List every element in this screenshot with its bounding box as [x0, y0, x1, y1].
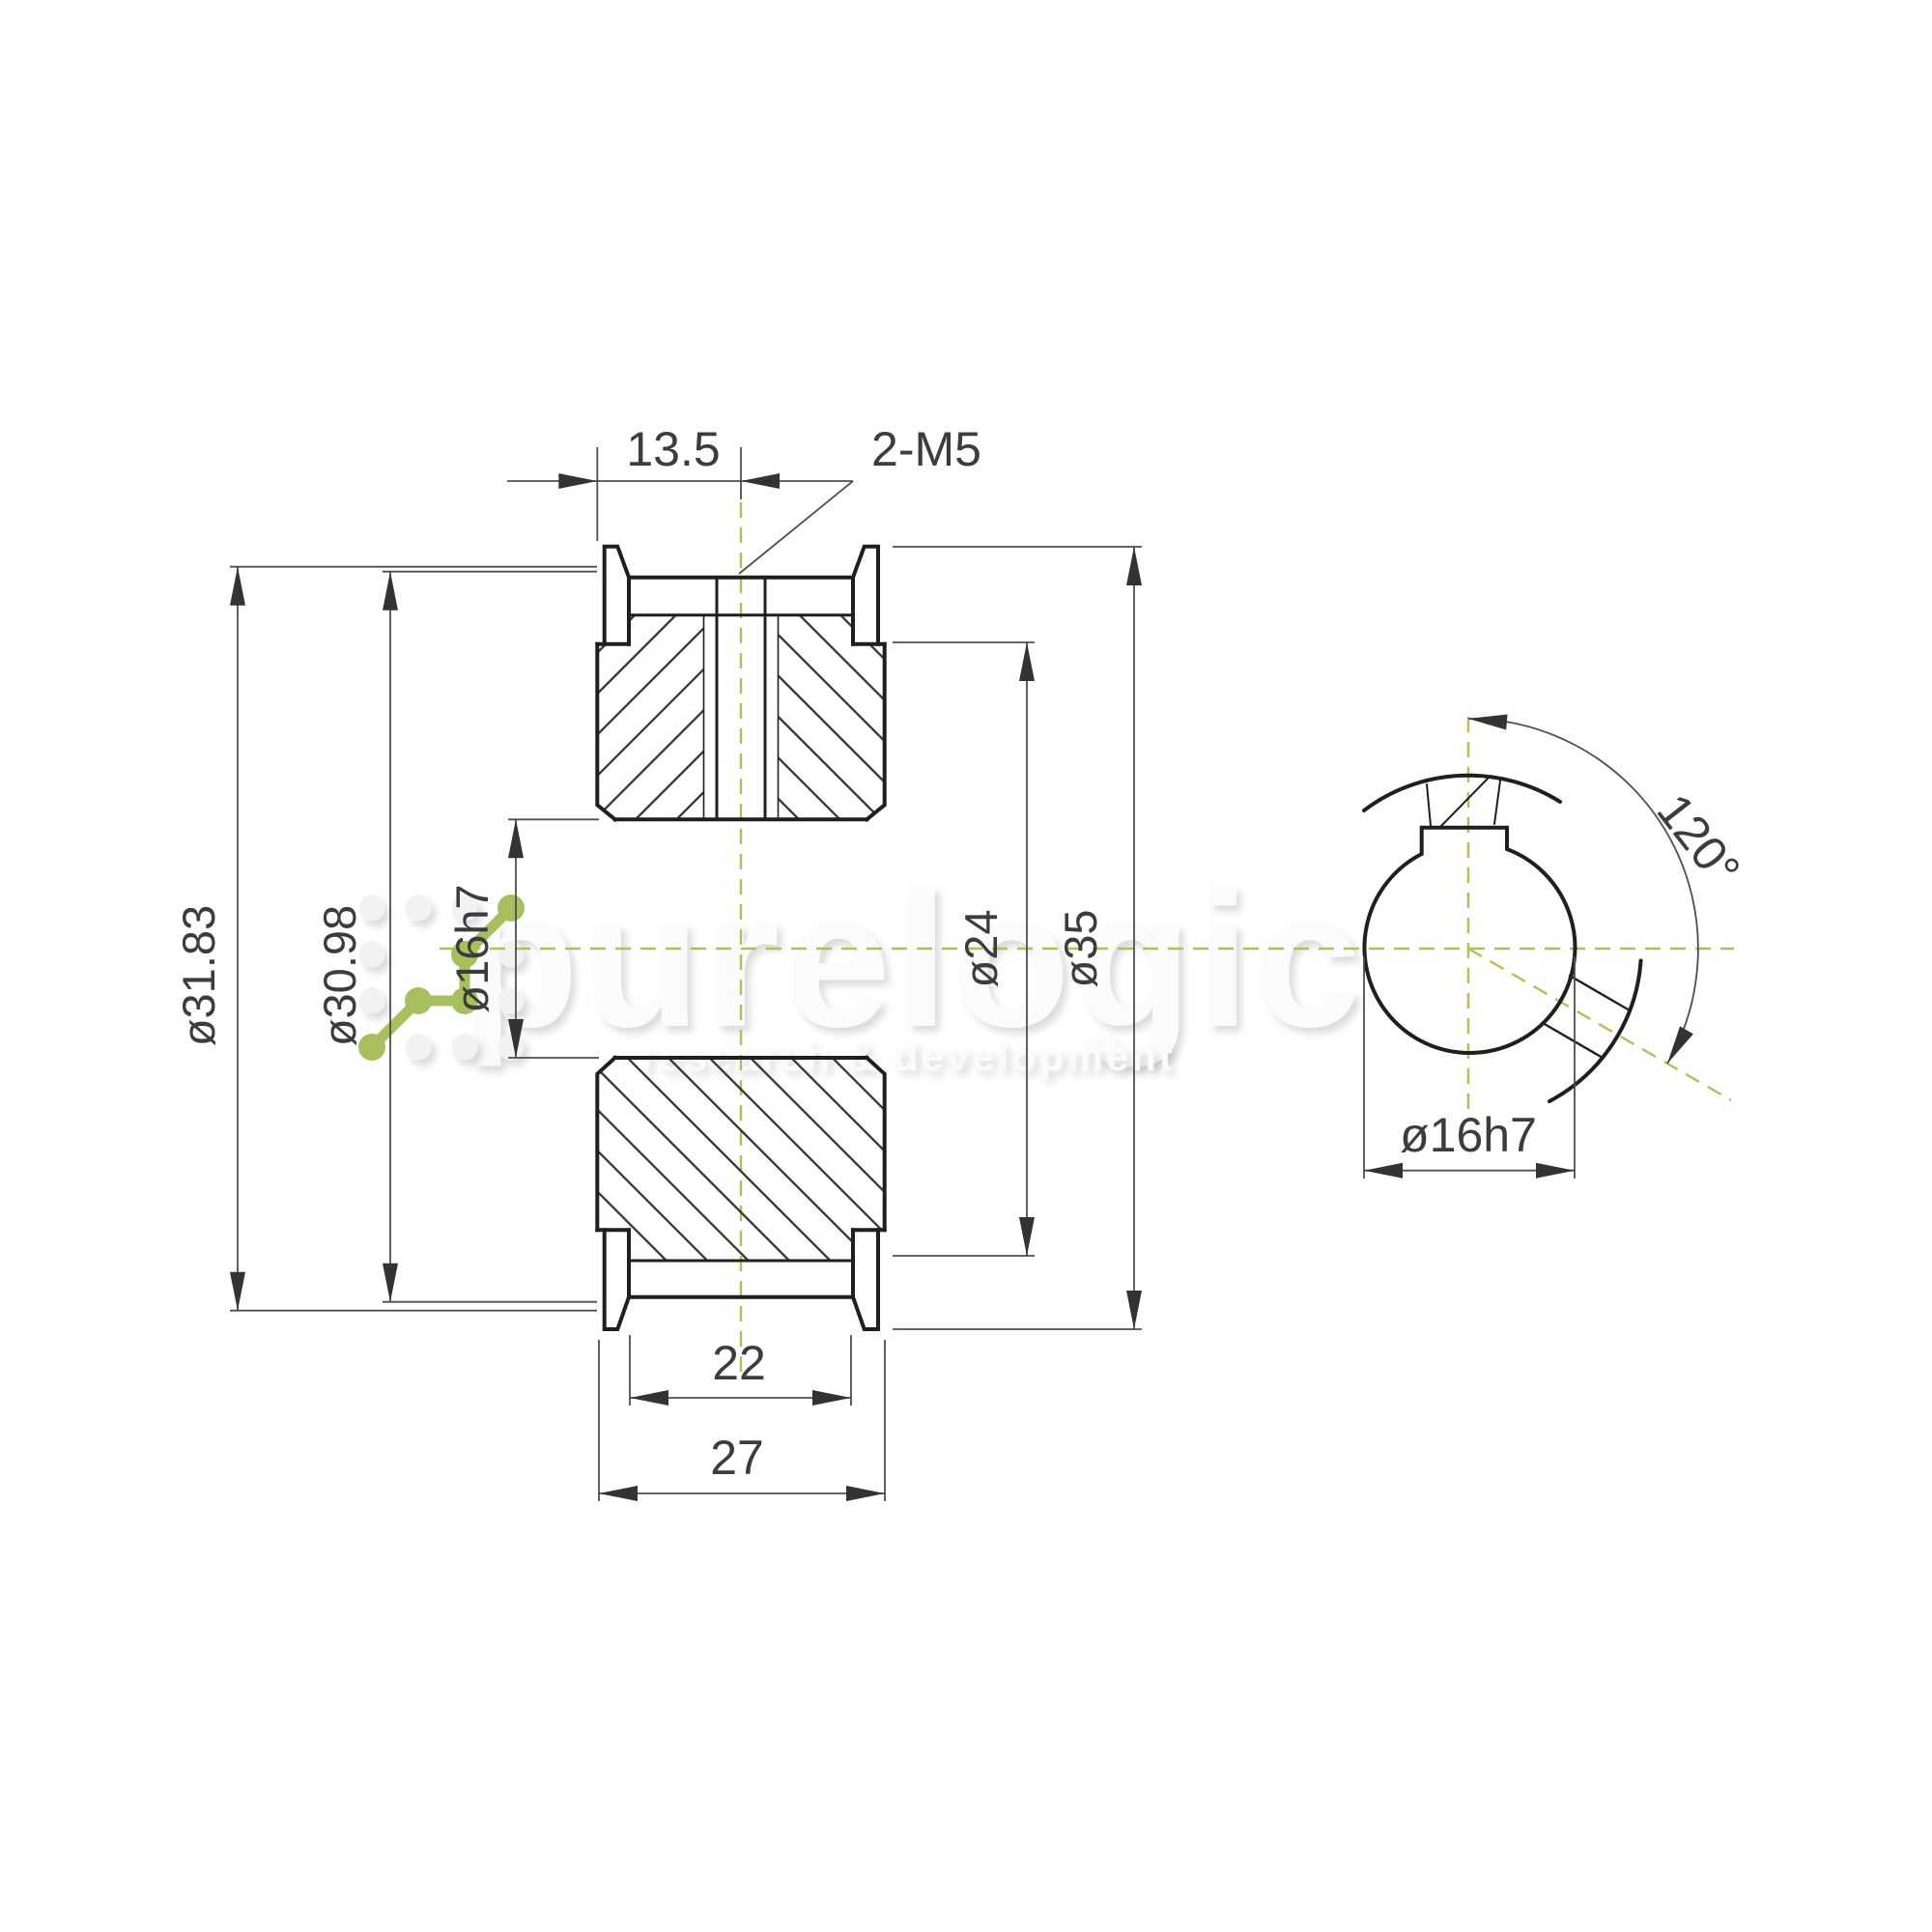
label-hole-offset: 13.5 — [626, 422, 720, 476]
pulley-drawing-svg: purelogic research & development — [0, 0, 1932, 1932]
label-setscrew: 2-M5 — [871, 422, 981, 476]
label-pitch-diameter: ø31.83 — [173, 905, 224, 1046]
side-view-outline — [1364, 776, 1641, 1101]
dim-angle-arc — [1468, 719, 1698, 1064]
label-overall-width: 27 — [710, 1431, 764, 1485]
hatch-bottom — [597, 1058, 884, 1261]
label-hub-diameter: ø24 — [955, 910, 1007, 988]
outer-arc-bottom — [1549, 961, 1641, 1102]
technical-drawing-page: purelogic research & development — [0, 0, 1932, 1932]
label-setscrew-angle: 120° — [1646, 784, 1750, 896]
setscrew-hole-side — [1427, 779, 1500, 826]
label-bore-side: ø16h7 — [1400, 1108, 1537, 1162]
label-outside-diameter: ø30.98 — [314, 905, 365, 1046]
dimension-labels: ø31.83 ø30.98 ø16h7 ø24 ø35 13.5 2-M5 22… — [173, 422, 1750, 1485]
side-keyway-axis-centerline — [1468, 949, 1731, 1100]
watermark: purelogic research & development — [461, 852, 1365, 1079]
setscrew-leader-line — [739, 481, 853, 574]
label-flange-diameter: ø35 — [1055, 910, 1106, 988]
label-bore-front: ø16h7 — [446, 884, 497, 1012]
label-belt-width: 22 — [712, 1336, 766, 1390]
keyway-slot — [1422, 828, 1507, 854]
